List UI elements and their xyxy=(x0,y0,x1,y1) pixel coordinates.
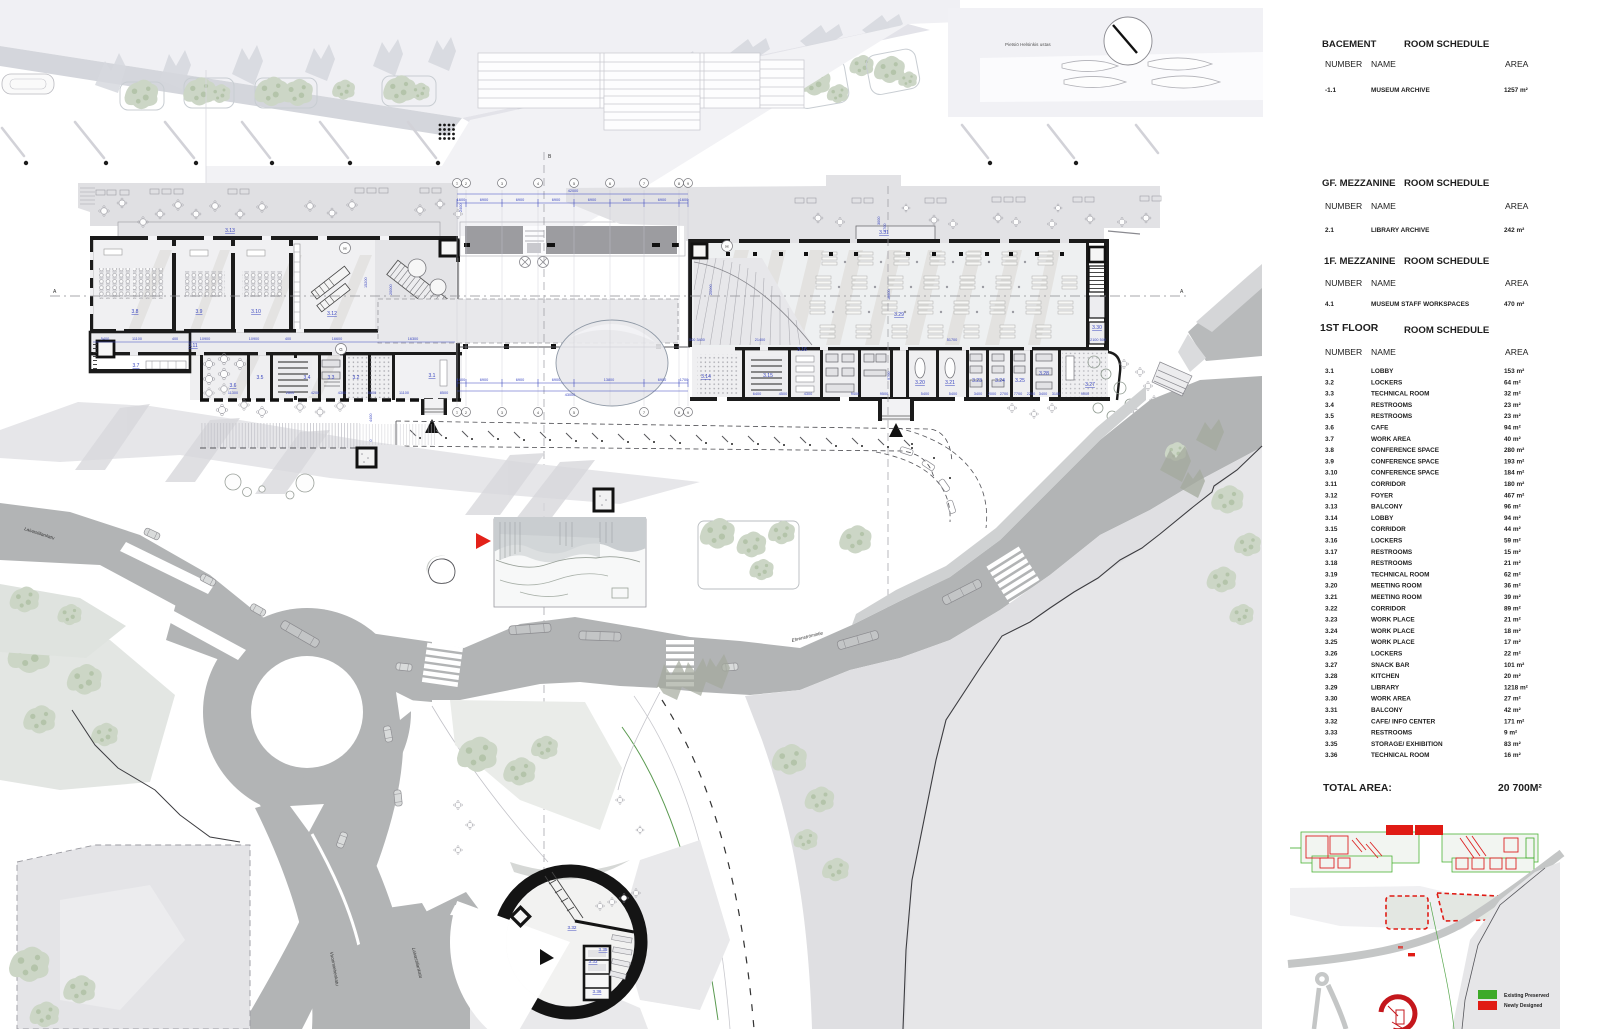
svg-text:16600: 16600 xyxy=(332,337,343,341)
svg-text:ROOM SCHEDULE: ROOM SCHEDULE xyxy=(1404,256,1490,267)
svg-text:184 m²: 184 m² xyxy=(1504,470,1524,477)
svg-text:2400: 2400 xyxy=(459,204,463,212)
svg-text:RESTROOMS: RESTROOMS xyxy=(1371,413,1413,420)
svg-text:3.36: 3.36 xyxy=(1325,752,1338,759)
svg-text:H: H xyxy=(725,244,728,249)
svg-text:NAME: NAME xyxy=(1371,59,1396,69)
svg-text:-1.1: -1.1 xyxy=(1325,87,1336,94)
svg-text:3.4: 3.4 xyxy=(304,375,311,381)
svg-text:64 m²: 64 m² xyxy=(1504,379,1521,386)
svg-text:AREA: AREA xyxy=(1505,59,1529,69)
svg-text:BACEMENT: BACEMENT xyxy=(1322,39,1377,50)
svg-text:23 m²: 23 m² xyxy=(1504,413,1521,420)
svg-text:4: 4 xyxy=(537,411,539,415)
svg-text:3400: 3400 xyxy=(974,392,982,396)
svg-text:3.16: 3.16 xyxy=(1325,538,1338,545)
svg-text:20000: 20000 xyxy=(709,284,713,295)
svg-text:3.35: 3.35 xyxy=(1325,741,1338,748)
svg-text:LOCKERS: LOCKERS xyxy=(1371,379,1403,386)
svg-text:94 m²: 94 m² xyxy=(1504,425,1521,432)
svg-text:2700: 2700 xyxy=(1000,392,1008,396)
svg-text:9400: 9400 xyxy=(851,392,859,396)
svg-text:LOCKERS: LOCKERS xyxy=(1371,651,1403,658)
svg-text:3.12: 3.12 xyxy=(327,311,337,317)
svg-text:LIBRARY ARCHIVE: LIBRARY ARCHIVE xyxy=(1371,227,1430,234)
svg-text:2.1: 2.1 xyxy=(1325,227,1334,234)
svg-text:8500: 8500 xyxy=(440,391,448,395)
svg-text:3.20: 3.20 xyxy=(915,380,925,386)
svg-text:3.1: 3.1 xyxy=(429,373,436,379)
svg-text:2: 2 xyxy=(465,182,467,186)
svg-text:3.16: 3.16 xyxy=(797,347,807,353)
svg-text:3.1: 3.1 xyxy=(1325,368,1334,375)
svg-text:6900: 6900 xyxy=(552,198,560,202)
svg-text:3: 3 xyxy=(501,182,503,186)
svg-text:LOCKERS: LOCKERS xyxy=(1371,538,1403,545)
svg-text:AREA: AREA xyxy=(1505,347,1529,357)
svg-text:MUSEUM STAFF WORKSPACES: MUSEUM STAFF WORKSPACES xyxy=(1371,301,1470,308)
svg-text:3.5: 3.5 xyxy=(257,375,264,381)
svg-text:3.10: 3.10 xyxy=(1325,470,1338,477)
svg-text:3.20: 3.20 xyxy=(1325,583,1338,590)
svg-text:5400: 5400 xyxy=(949,392,957,396)
svg-text:5400: 5400 xyxy=(101,337,109,341)
svg-text:3.21: 3.21 xyxy=(945,380,955,386)
svg-text:NUMBER: NUMBER xyxy=(1325,201,1362,211)
svg-text:1600: 1600 xyxy=(457,378,465,382)
svg-text:3.6: 3.6 xyxy=(230,383,237,389)
svg-text:62 m²: 62 m² xyxy=(1504,571,1521,578)
svg-text:3.15: 3.15 xyxy=(1325,526,1338,533)
svg-text:6400: 6400 xyxy=(753,392,761,396)
svg-text:6900: 6900 xyxy=(588,198,596,202)
svg-text:400: 400 xyxy=(285,337,291,341)
svg-text:3400: 3400 xyxy=(1039,392,1047,396)
svg-text:KITCHEN: KITCHEN xyxy=(1371,673,1400,680)
svg-text:3: 3 xyxy=(501,411,503,415)
svg-text:8: 8 xyxy=(678,411,680,415)
svg-text:CAFE/ INFO CENTER: CAFE/ INFO CENTER xyxy=(1371,718,1436,725)
svg-text:22 m²: 22 m² xyxy=(1504,651,1521,658)
svg-text:3.17: 3.17 xyxy=(1325,549,1338,556)
svg-text:MUSEUM ARCHIVE: MUSEUM ARCHIVE xyxy=(1371,87,1430,94)
svg-text:21 m²: 21 m² xyxy=(1504,560,1521,567)
svg-text:6900: 6900 xyxy=(516,378,524,382)
svg-text:NUMBER: NUMBER xyxy=(1325,347,1362,357)
svg-text:36 m²: 36 m² xyxy=(1504,583,1521,590)
svg-text:27 m²: 27 m² xyxy=(1504,696,1521,703)
svg-text:3.9: 3.9 xyxy=(1325,458,1334,465)
svg-text:CAFE: CAFE xyxy=(1371,425,1389,432)
svg-text:H: H xyxy=(343,246,346,251)
svg-text:3.18: 3.18 xyxy=(1325,560,1338,567)
svg-text:21 m²: 21 m² xyxy=(1504,617,1521,624)
svg-text:3.24: 3.24 xyxy=(1325,628,1338,635)
svg-text:3.19: 3.19 xyxy=(1325,571,1338,578)
svg-text:101 m²: 101 m² xyxy=(1504,662,1524,669)
svg-text:59 m²: 59 m² xyxy=(1504,538,1521,545)
svg-text:3.23: 3.23 xyxy=(1325,617,1338,624)
svg-text:CORRIDOR: CORRIDOR xyxy=(1371,605,1406,612)
svg-text:11300: 11300 xyxy=(228,391,238,395)
svg-text:3.5: 3.5 xyxy=(1325,413,1334,420)
svg-text:3.24: 3.24 xyxy=(995,378,1005,384)
svg-text:3.7: 3.7 xyxy=(133,363,140,369)
svg-text:3.28: 3.28 xyxy=(1039,371,1049,377)
svg-text:NAME: NAME xyxy=(1371,347,1396,357)
svg-text:3.8: 3.8 xyxy=(132,309,139,315)
svg-text:5600: 5600 xyxy=(368,391,376,395)
svg-text:WORK AREA: WORK AREA xyxy=(1371,696,1411,703)
svg-text:TOTAL AREA:: TOTAL AREA: xyxy=(1323,783,1392,794)
svg-text:3.8: 3.8 xyxy=(1325,447,1334,454)
svg-text:3.22: 3.22 xyxy=(1325,605,1338,612)
svg-text:NUMBER: NUMBER xyxy=(1325,59,1362,69)
svg-text:6900: 6900 xyxy=(552,378,560,382)
svg-text:242 m²: 242 m² xyxy=(1504,227,1524,234)
svg-text:1600: 1600 xyxy=(680,198,688,202)
svg-text:193 m²: 193 m² xyxy=(1504,458,1524,465)
svg-text:20 m²: 20 m² xyxy=(1504,673,1521,680)
svg-text:1: 1 xyxy=(456,411,458,415)
svg-text:18 m²: 18 m² xyxy=(1504,628,1521,635)
svg-text:3.31: 3.31 xyxy=(1325,707,1338,714)
svg-text:3.29: 3.29 xyxy=(1325,684,1338,691)
svg-text:8: 8 xyxy=(678,182,680,186)
svg-text:9700: 9700 xyxy=(887,372,891,380)
svg-text:RESTROOMS: RESTROOMS xyxy=(1371,402,1413,409)
svg-text:G: G xyxy=(339,347,343,352)
svg-text:NAME: NAME xyxy=(1371,201,1396,211)
svg-text:20 700M²: 20 700M² xyxy=(1498,783,1542,794)
svg-text:9500: 9500 xyxy=(880,392,888,396)
svg-text:2: 2 xyxy=(465,411,467,415)
svg-text:15200: 15200 xyxy=(364,277,368,288)
svg-text:20000: 20000 xyxy=(389,284,393,295)
svg-text:94 m²: 94 m² xyxy=(1504,515,1521,522)
svg-text:3.2: 3.2 xyxy=(1325,379,1334,386)
svg-text:6900: 6900 xyxy=(480,378,488,382)
svg-text:7: 7 xyxy=(643,411,645,415)
svg-text:3.26: 3.26 xyxy=(1325,651,1338,658)
svg-text:CONFERENCE SPACE: CONFERENCE SPACE xyxy=(1371,458,1440,465)
svg-text:51700: 51700 xyxy=(947,338,958,342)
svg-text:280 m²: 280 m² xyxy=(1504,447,1524,454)
svg-text:3.35: 3.35 xyxy=(599,947,608,952)
svg-text:NUMBER: NUMBER xyxy=(1325,278,1362,288)
svg-text:5: 5 xyxy=(573,411,575,415)
svg-text:4400: 4400 xyxy=(369,414,373,422)
svg-text:4500: 4500 xyxy=(779,392,787,396)
svg-text:7: 7 xyxy=(643,182,645,186)
svg-text:RESTROOMS: RESTROOMS xyxy=(1371,730,1413,737)
svg-text:3.12: 3.12 xyxy=(1325,492,1338,499)
svg-text:9000: 9000 xyxy=(1081,392,1089,396)
svg-text:AREA: AREA xyxy=(1505,201,1529,211)
svg-text:6900: 6900 xyxy=(623,198,631,202)
svg-text:42 m²: 42 m² xyxy=(1504,707,1521,714)
svg-text:470 m²: 470 m² xyxy=(1504,301,1524,308)
svg-text:2100 500: 2100 500 xyxy=(1090,338,1106,342)
svg-text:1257 m²: 1257 m² xyxy=(1504,87,1528,94)
svg-text:16 m²: 16 m² xyxy=(1504,752,1521,759)
svg-text:4: 4 xyxy=(537,182,539,186)
svg-text:CORRIDOR: CORRIDOR xyxy=(1371,526,1406,533)
svg-text:Newly Designed: Newly Designed xyxy=(1504,1003,1542,1009)
svg-text:3.13: 3.13 xyxy=(225,228,235,234)
svg-text:3.36: 3.36 xyxy=(593,989,602,994)
svg-text:89 m²: 89 m² xyxy=(1504,605,1521,612)
svg-text:RESTROOMS: RESTROOMS xyxy=(1371,549,1413,556)
svg-text:SNACK BAR: SNACK BAR xyxy=(1371,662,1410,669)
svg-text:4300: 4300 xyxy=(804,392,812,396)
svg-text:3.7: 3.7 xyxy=(1325,436,1334,443)
svg-text:TECHNICAL ROOM: TECHNICAL ROOM xyxy=(1371,752,1429,759)
svg-text:11100: 11100 xyxy=(132,337,142,341)
svg-text:1F. MEZZANINE: 1F. MEZZANINE xyxy=(1324,256,1396,267)
svg-text:3.4: 3.4 xyxy=(1325,402,1334,409)
svg-text:3.25: 3.25 xyxy=(1015,378,1025,384)
svg-text:2000: 2000 xyxy=(988,392,996,396)
svg-text:500 3400: 500 3400 xyxy=(689,338,705,342)
svg-text:9: 9 xyxy=(687,411,689,415)
svg-text:Pietsiö Helsinkis ustas: Pietsiö Helsinkis ustas xyxy=(1005,42,1051,47)
svg-text:NAME: NAME xyxy=(1371,278,1396,288)
svg-text:3.14: 3.14 xyxy=(1325,515,1338,522)
svg-text:180 m²: 180 m² xyxy=(1504,481,1524,488)
svg-text:2200: 2200 xyxy=(1027,392,1035,396)
svg-text:3.33: 3.33 xyxy=(1325,730,1338,737)
svg-text:3.29: 3.29 xyxy=(894,312,904,318)
svg-text:3.3: 3.3 xyxy=(1325,391,1334,398)
svg-text:6900: 6900 xyxy=(658,198,666,202)
svg-text:83 m²: 83 m² xyxy=(1504,741,1521,748)
svg-text:CONFERENCE SPACE: CONFERENCE SPACE xyxy=(1371,447,1440,454)
svg-text:6900: 6900 xyxy=(516,198,524,202)
svg-text:3.6: 3.6 xyxy=(1325,425,1334,432)
svg-text:CORRIDOR: CORRIDOR xyxy=(1371,481,1406,488)
svg-text:10900: 10900 xyxy=(200,337,211,341)
svg-text:3.32: 3.32 xyxy=(1325,718,1338,725)
svg-text:6900: 6900 xyxy=(658,378,666,382)
svg-text:3.30: 3.30 xyxy=(1092,325,1102,331)
svg-text:96 m²: 96 m² xyxy=(1504,504,1521,511)
svg-text:LOBBY: LOBBY xyxy=(1371,368,1394,375)
svg-text:ROOM SCHEDULE: ROOM SCHEDULE xyxy=(1404,39,1490,50)
svg-text:18600: 18600 xyxy=(887,289,891,300)
svg-text:3.13: 3.13 xyxy=(1325,504,1338,511)
svg-text:3.11: 3.11 xyxy=(1325,481,1338,488)
svg-text:2600: 2600 xyxy=(286,391,294,395)
svg-text:40 m²: 40 m² xyxy=(1504,436,1521,443)
svg-text:3000: 3000 xyxy=(877,217,881,225)
svg-text:3.23: 3.23 xyxy=(972,378,982,384)
svg-text:7700: 7700 xyxy=(1014,392,1022,396)
svg-text:467 m²: 467 m² xyxy=(1504,492,1524,499)
svg-text:3.33: 3.33 xyxy=(589,959,598,964)
svg-text:3.2: 3.2 xyxy=(353,375,360,381)
svg-text:3.11: 3.11 xyxy=(188,343,198,349)
svg-text:FOYER: FOYER xyxy=(1371,492,1393,499)
svg-text:3.10: 3.10 xyxy=(251,309,261,315)
svg-text:LOBBY: LOBBY xyxy=(1371,515,1394,522)
svg-text:3.3: 3.3 xyxy=(328,375,335,381)
svg-text:11100: 11100 xyxy=(399,391,409,395)
svg-text:ROOM SCHEDULE: ROOM SCHEDULE xyxy=(1404,325,1490,336)
svg-text:4300: 4300 xyxy=(338,391,346,395)
svg-text:RESTROOMS: RESTROOMS xyxy=(1371,560,1413,567)
svg-text:3.25: 3.25 xyxy=(1325,639,1338,646)
svg-text:17 m²: 17 m² xyxy=(1504,639,1521,646)
svg-text:WORK PLACE: WORK PLACE xyxy=(1371,639,1415,646)
svg-text:39 m²: 39 m² xyxy=(1504,594,1521,601)
svg-text:43000: 43000 xyxy=(565,393,576,397)
svg-text:BALCONY: BALCONY xyxy=(1371,504,1403,511)
svg-text:Existing Preserved: Existing Preserved xyxy=(1504,993,1549,999)
svg-text:3.28: 3.28 xyxy=(1325,673,1338,680)
svg-text:9 m²: 9 m² xyxy=(1504,730,1517,737)
svg-text:1218 m²: 1218 m² xyxy=(1504,684,1528,691)
svg-text:AREA: AREA xyxy=(1505,278,1529,288)
svg-text:3.31: 3.31 xyxy=(879,230,889,236)
svg-text:3.32: 3.32 xyxy=(568,925,577,930)
svg-text:3.27: 3.27 xyxy=(1085,382,1095,388)
svg-text:21400: 21400 xyxy=(755,338,766,342)
svg-text:42000: 42000 xyxy=(568,189,579,193)
svg-text:WORK PLACE: WORK PLACE xyxy=(1371,617,1415,624)
svg-text:13800: 13800 xyxy=(604,378,615,382)
svg-text:MEETING ROOM: MEETING ROOM xyxy=(1371,594,1422,601)
svg-text:TECHNICAL ROOM: TECHNICAL ROOM xyxy=(1371,571,1429,578)
svg-text:5: 5 xyxy=(573,182,575,186)
svg-text:3.9: 3.9 xyxy=(196,309,203,315)
svg-text:LIBRARY: LIBRARY xyxy=(1371,684,1400,691)
svg-text:5400: 5400 xyxy=(921,392,929,396)
svg-text:3.30: 3.30 xyxy=(1325,696,1338,703)
svg-text:3100: 3100 xyxy=(1052,392,1060,396)
svg-text:STORAGE/ EXHIBITION: STORAGE/ EXHIBITION xyxy=(1371,741,1443,748)
svg-text:3.21: 3.21 xyxy=(1325,594,1338,601)
svg-text:BALCONY: BALCONY xyxy=(1371,707,1403,714)
svg-text:WORK PLACE: WORK PLACE xyxy=(1371,628,1415,635)
svg-text:1600: 1600 xyxy=(457,198,465,202)
svg-text:MEETING ROOM: MEETING ROOM xyxy=(1371,583,1422,590)
svg-text:44 m²: 44 m² xyxy=(1504,526,1521,533)
svg-text:6: 6 xyxy=(609,182,611,186)
svg-text:TECHNICAL ROOM: TECHNICAL ROOM xyxy=(1371,391,1429,398)
svg-text:3.14: 3.14 xyxy=(701,374,711,380)
svg-text:4200: 4200 xyxy=(311,391,319,395)
svg-text:9: 9 xyxy=(687,182,689,186)
svg-text:171 m²: 171 m² xyxy=(1504,718,1524,725)
svg-text:16300: 16300 xyxy=(408,337,419,341)
svg-text:1ST FLOOR: 1ST FLOOR xyxy=(1320,323,1379,334)
svg-text:32 m²: 32 m² xyxy=(1504,391,1521,398)
svg-text:4.1: 4.1 xyxy=(1325,301,1334,308)
svg-text:CONFERENCE SPACE: CONFERENCE SPACE xyxy=(1371,470,1440,477)
svg-text:400: 400 xyxy=(172,337,178,341)
svg-text:3.27: 3.27 xyxy=(1325,662,1338,669)
svg-text:15 m²: 15 m² xyxy=(1504,549,1521,556)
svg-text:153 m²: 153 m² xyxy=(1504,368,1524,375)
svg-text:1: 1 xyxy=(456,182,458,186)
svg-text:1700: 1700 xyxy=(680,378,688,382)
svg-text:WORK AREA: WORK AREA xyxy=(1371,436,1411,443)
svg-text:10900: 10900 xyxy=(249,337,260,341)
svg-text:ROOM SCHEDULE: ROOM SCHEDULE xyxy=(1404,178,1490,189)
svg-text:3.15: 3.15 xyxy=(763,373,773,379)
svg-text:GF. MEZZANINE: GF. MEZZANINE xyxy=(1322,178,1396,189)
svg-text:6900: 6900 xyxy=(480,198,488,202)
svg-text:23 m²: 23 m² xyxy=(1504,402,1521,409)
